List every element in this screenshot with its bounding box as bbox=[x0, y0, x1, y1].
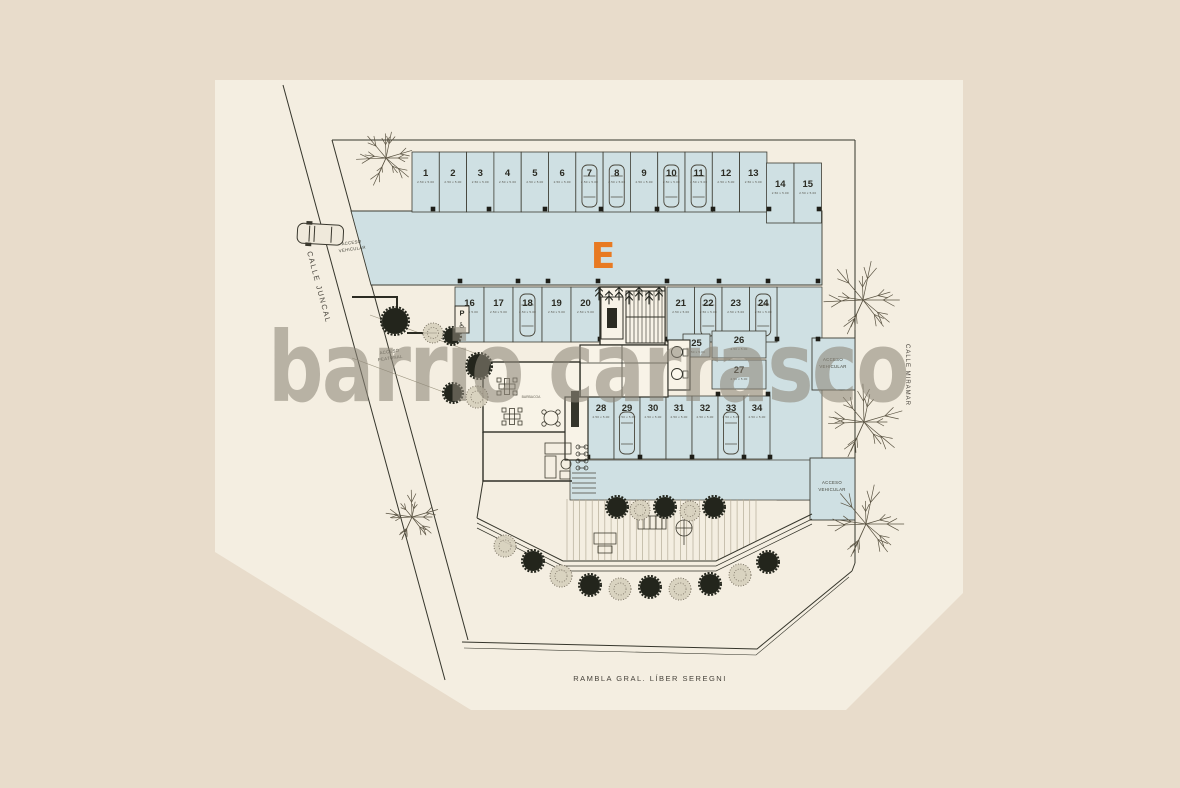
stall-number: 19 bbox=[551, 298, 562, 309]
stall-number: 13 bbox=[748, 168, 759, 179]
tree-icon bbox=[639, 576, 661, 598]
stall-number: 9 bbox=[641, 168, 646, 179]
column-marker bbox=[599, 207, 604, 212]
tree-icon bbox=[680, 501, 700, 521]
stall-dimension: 2.50 x 5.00 bbox=[444, 180, 461, 184]
column-marker bbox=[742, 455, 747, 460]
tree-icon bbox=[522, 550, 544, 572]
building-e-label: E bbox=[591, 236, 616, 277]
column-marker bbox=[816, 279, 821, 284]
stall-dimension: 2.50 x 5.00 bbox=[526, 180, 543, 184]
stall-number: 10 bbox=[666, 168, 677, 179]
tree-icon bbox=[630, 500, 650, 520]
stall-dimension: 2.50 x 5.00 bbox=[636, 180, 653, 184]
stall-number: 12 bbox=[721, 168, 732, 179]
tree-icon bbox=[654, 496, 676, 518]
stall-number: 23 bbox=[730, 298, 741, 309]
tree-icon bbox=[703, 496, 725, 518]
street-label-rambla: RAMBLA GRAL. LÍBER SEREGNI bbox=[573, 674, 727, 683]
svg-text:VEHICULAR: VEHICULAR bbox=[818, 487, 845, 492]
stall-dimension: 2.50 x 5.00 bbox=[799, 191, 816, 195]
stall-dimension: 2.50 x 5.00 bbox=[581, 180, 598, 184]
stall-dimension: 2.50 x 5.00 bbox=[690, 180, 707, 184]
tree-icon bbox=[606, 496, 628, 518]
stall-number: 5 bbox=[532, 168, 538, 179]
column-marker bbox=[543, 207, 548, 212]
column-marker bbox=[516, 279, 521, 284]
stall-number: 3 bbox=[478, 168, 483, 179]
column-marker bbox=[638, 455, 643, 460]
stall-number: 7 bbox=[587, 168, 592, 179]
column-marker bbox=[458, 279, 463, 284]
stall-number: 8 bbox=[614, 168, 619, 179]
tree-icon bbox=[579, 574, 601, 596]
site-plan: 12.50 x 5.0022.50 x 5.0032.50 x 5.0042.5… bbox=[0, 0, 1180, 788]
column-marker bbox=[431, 207, 436, 212]
tree-icon bbox=[669, 578, 691, 600]
svg-text:ACCESO: ACCESO bbox=[822, 480, 842, 485]
car-icon bbox=[297, 221, 344, 247]
stall-number: 18 bbox=[522, 298, 533, 309]
stall-number: 20 bbox=[580, 298, 591, 309]
stall-number: 1 bbox=[423, 168, 429, 179]
column-marker bbox=[711, 207, 716, 212]
stall-dimension: 2.50 x 5.00 bbox=[608, 180, 625, 184]
stall-dimension: 2.50 x 5.00 bbox=[417, 180, 434, 184]
column-marker bbox=[768, 455, 773, 460]
stall-dimension: 2.50 x 5.00 bbox=[717, 180, 734, 184]
watermark: barrio carrasco bbox=[268, 311, 908, 424]
column-marker bbox=[596, 279, 601, 284]
tree-icon bbox=[550, 565, 572, 587]
stall-number: 14 bbox=[775, 179, 786, 190]
stall-dimension: 2.50 x 5.00 bbox=[499, 180, 516, 184]
column-marker bbox=[717, 279, 722, 284]
tree-icon bbox=[757, 551, 779, 573]
column-marker bbox=[655, 207, 660, 212]
column-marker bbox=[690, 455, 695, 460]
stall-number: 22 bbox=[703, 298, 714, 309]
stall-dimension: 2.50 x 5.00 bbox=[472, 180, 489, 184]
tree-icon bbox=[699, 573, 721, 595]
tree-icon bbox=[609, 578, 631, 600]
column-marker bbox=[487, 207, 492, 212]
plan-canvas: 12.50 x 5.0022.50 x 5.0032.50 x 5.0042.5… bbox=[0, 0, 1180, 788]
stall-number: 17 bbox=[493, 298, 504, 309]
tree-icon bbox=[729, 564, 751, 586]
stall-number: 15 bbox=[802, 179, 813, 190]
stall-dimension: 2.50 x 5.00 bbox=[663, 180, 680, 184]
column-marker bbox=[767, 207, 772, 212]
tree-icon bbox=[494, 535, 516, 557]
stall-number: 21 bbox=[675, 298, 686, 309]
column-marker bbox=[665, 279, 670, 284]
column-marker bbox=[546, 279, 551, 284]
stall-dimension: 2.50 x 5.00 bbox=[554, 180, 571, 184]
column-marker bbox=[817, 207, 822, 212]
column-marker bbox=[766, 279, 771, 284]
stall-dimension: 2.50 x 5.00 bbox=[745, 180, 762, 184]
stall-number: 6 bbox=[560, 168, 565, 179]
stall-dimension: 2.50 x 5.00 bbox=[772, 191, 789, 195]
stall-number: 4 bbox=[505, 168, 511, 179]
stall-number: 2 bbox=[450, 168, 455, 179]
stall-number: 11 bbox=[694, 168, 705, 179]
stall-number: 24 bbox=[758, 298, 769, 309]
